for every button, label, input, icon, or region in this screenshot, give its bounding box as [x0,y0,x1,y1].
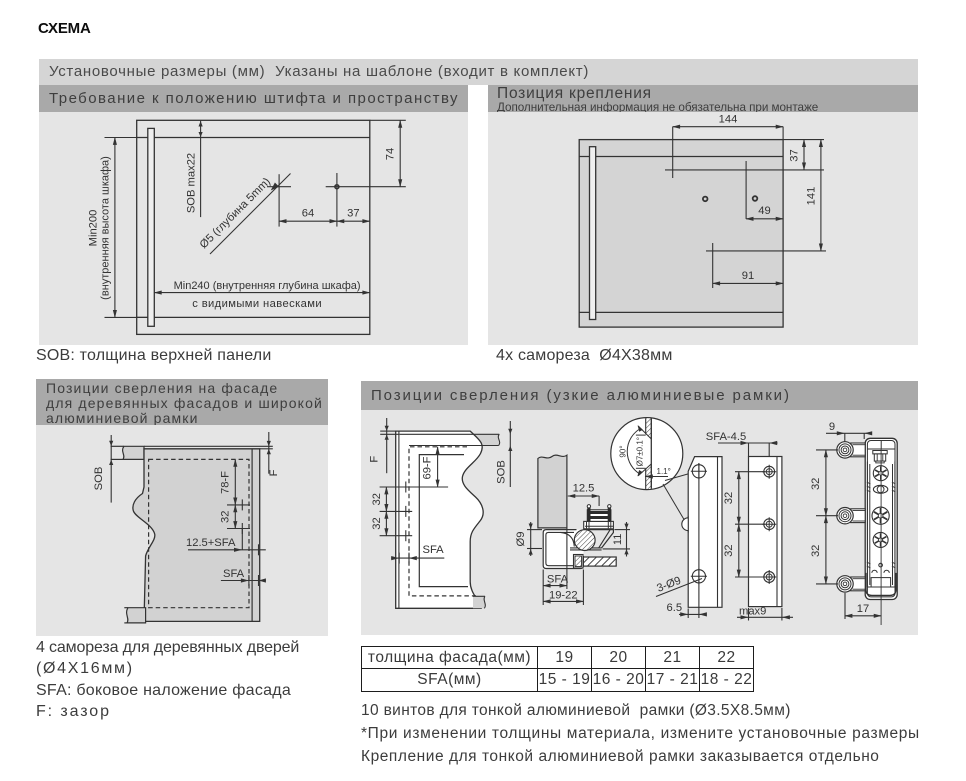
svg-text:SFA: SFA [547,573,569,585]
svg-text:32: 32 [371,493,383,505]
svg-text:144: 144 [719,114,738,126]
svg-text:91: 91 [742,270,754,282]
svg-text:37: 37 [789,149,801,161]
svg-text:SFA: SFA [423,544,445,556]
svg-text:32: 32 [371,517,383,529]
svg-text:max9: max9 [739,605,766,617]
svg-text:12.5: 12.5 [573,483,595,495]
svg-text:141: 141 [806,187,818,206]
svg-text:SOB max22: SOB max22 [186,153,198,213]
svg-text:F: F [268,469,280,476]
svg-text:78-F: 78-F [220,471,232,494]
svg-text:Min200: Min200 [88,210,100,247]
svg-text:69-F: 69-F [421,456,433,479]
svg-text:37: 37 [347,208,359,220]
svg-text:F: F [369,456,381,463]
svg-text:32: 32 [810,478,822,490]
svg-text:32: 32 [723,492,735,504]
svg-text:19-22: 19-22 [549,589,578,601]
svg-text:32: 32 [220,510,232,522]
svg-text:Ø7±0.1°: Ø7±0.1° [636,437,645,466]
svg-text:9: 9 [829,421,835,433]
svg-text:SOB: SOB [496,460,508,484]
svg-text:17: 17 [857,603,869,615]
svg-text:49: 49 [758,205,770,217]
svg-text:11: 11 [612,533,624,545]
svg-text:Min240 (внутренняя глубина шка: Min240 (внутренняя глубина шкафа) [174,280,361,292]
svg-text:SFA-4.5: SFA-4.5 [706,431,746,443]
svg-text:74: 74 [385,148,397,160]
svg-text:Ø5 (глубина 5mm): Ø5 (глубина 5mm) [198,175,274,251]
svg-text:90°: 90° [619,445,628,457]
svg-text:SOB: SOB [93,467,105,491]
svg-text:6.5: 6.5 [667,602,683,614]
svg-text:32: 32 [810,545,822,557]
svg-text:1.1°: 1.1° [657,467,671,476]
svg-text:(внутренняя высота шкафа): (внутренняя высота шкафа) [100,156,112,300]
svg-text:32: 32 [723,544,735,556]
svg-text:SFA: SFA [223,568,245,580]
svg-text:64: 64 [302,208,314,220]
svg-text:с видимыми навесками: с видимыми навесками [192,298,322,310]
svg-text:12.5+SFA: 12.5+SFA [186,537,236,549]
svg-text:Ø9: Ø9 [515,532,527,547]
